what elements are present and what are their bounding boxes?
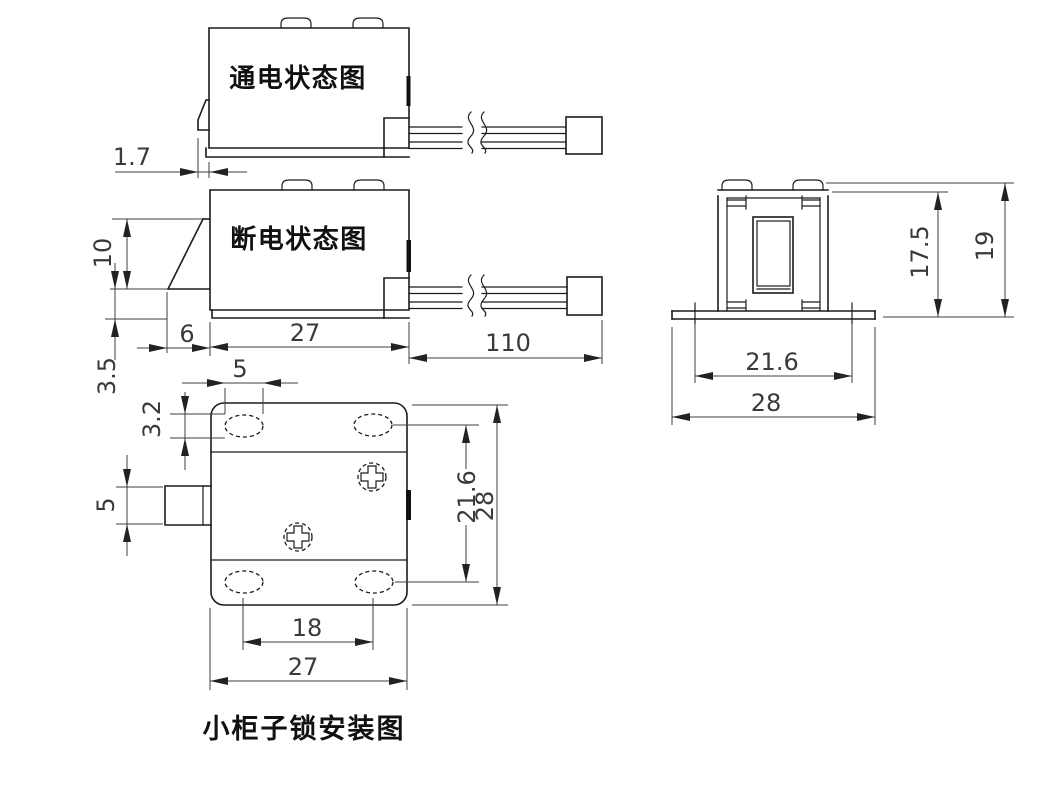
screw-head-symbol (284, 523, 312, 551)
dim-label-28-front: 28 (471, 491, 499, 522)
deenergized-state-view: 断电状态图 (168, 180, 602, 318)
side-bracket-view (672, 180, 875, 324)
latch-front (165, 486, 211, 525)
bracket-slot (753, 217, 793, 293)
dim-bolt-clearance-3-5: 3.5 (93, 263, 167, 395)
bolt-extended (168, 219, 210, 289)
screw-post-bump (281, 18, 311, 28)
front-mounting-view (165, 403, 411, 605)
screw-head-symbol (358, 463, 386, 491)
screw-post-bump (793, 180, 823, 190)
mounting-slot (225, 415, 263, 437)
dim-label-5-latch: 5 (92, 497, 120, 512)
dim-label-1-7: 1.7 (113, 143, 151, 171)
dim-cable-length-110: 110 (409, 320, 602, 364)
dim-label-10: 10 (89, 238, 117, 269)
wire-break-symbol (468, 275, 474, 316)
dim-label-18: 18 (292, 614, 323, 642)
dim-label-19: 19 (971, 231, 999, 262)
dim-label-21-6-side: 21.6 (745, 348, 798, 376)
dim-slot-length-5: 5 (182, 355, 298, 414)
dim-bolt-offset-1-7: 1.7 (113, 138, 247, 178)
dim-bracket-hole-span-21-6: 21.6 (695, 324, 852, 383)
edge-tab-mark (406, 490, 411, 520)
lead-wires (409, 112, 602, 154)
energized-state-label: 通电状态图 (229, 63, 367, 94)
technical-drawing-canvas: 通电状态图 1.7 断电状态图 (0, 0, 1053, 795)
dim-label-3-5: 3.5 (93, 357, 121, 395)
screw-post-bump (354, 180, 384, 190)
bolt-retracted (198, 100, 209, 130)
wire-break-symbol (481, 275, 487, 316)
screw-post-bump (722, 180, 752, 190)
edge-tab-mark (407, 240, 412, 272)
cabinet-lock-drawing-page: 通电状态图 1.7 断电状态图 (0, 0, 1053, 795)
dim-label-28-side: 28 (751, 389, 782, 417)
wire-break-symbol (468, 112, 474, 153)
dim-label-110: 110 (485, 329, 531, 357)
lead-wires (409, 275, 602, 316)
wire-connector (567, 277, 602, 315)
mounting-slot (225, 571, 263, 593)
dim-label-5-slot: 5 (232, 355, 247, 383)
mounting-slot (355, 571, 393, 593)
dim-label-17-5: 17.5 (906, 225, 934, 278)
mounting-slot (354, 414, 392, 436)
dim-bolt-protrusion-6: 6 (137, 292, 210, 353)
dim-latch-height-5: 5 (92, 455, 163, 556)
dim-slot-width-3-2: 3.2 (138, 392, 225, 470)
deenergized-state-label: 断电状态图 (230, 224, 368, 255)
edge-tab-mark (407, 76, 411, 106)
drawing-caption: 小柜子锁安装图 (203, 713, 406, 745)
energized-state-view: 通电状态图 (198, 18, 602, 157)
screw-post-bump (282, 180, 312, 190)
dim-label-6: 6 (179, 320, 194, 348)
dim-label-27-front: 27 (288, 653, 319, 681)
wire-connector (566, 117, 602, 154)
screw-post-bump (353, 18, 383, 28)
dim-label-27: 27 (290, 319, 321, 347)
lock-body-outline (211, 403, 407, 605)
wire-break-symbol (481, 112, 487, 153)
dim-label-3-2: 3.2 (138, 400, 166, 438)
